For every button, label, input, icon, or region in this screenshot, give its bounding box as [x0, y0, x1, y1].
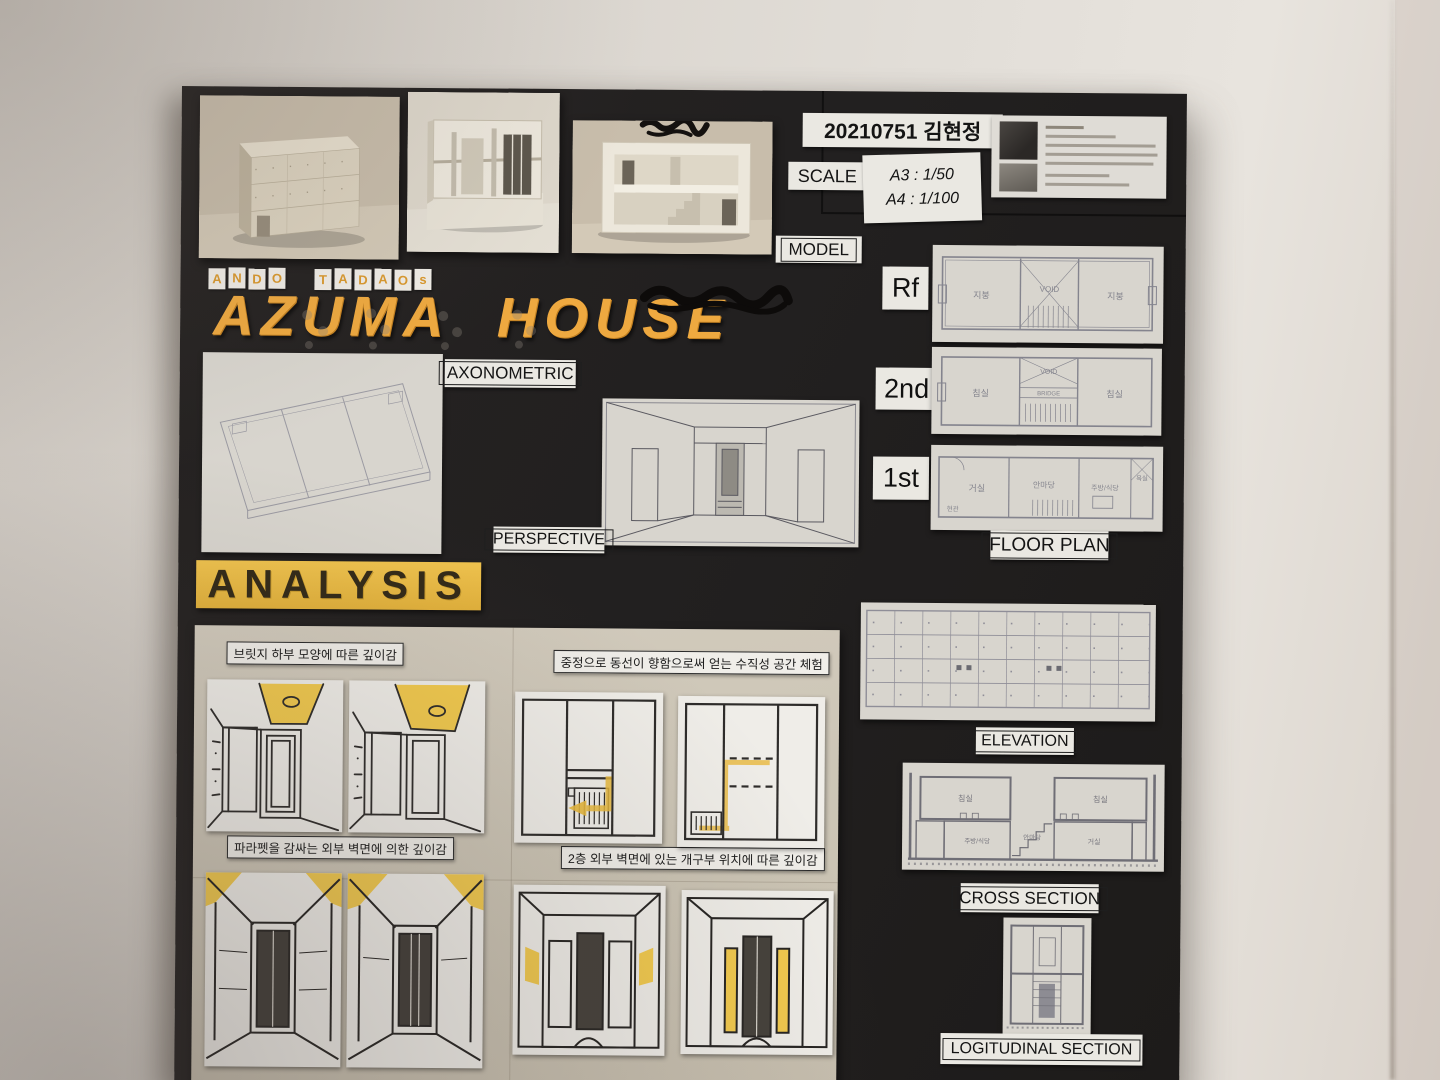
board-seam-vertical	[821, 91, 824, 212]
first-living-label: 거실	[969, 483, 986, 493]
rf-room-right-label: 지붕	[1107, 291, 1124, 301]
elevation-label: ELEVATION	[976, 727, 1074, 755]
model-label: MODEL	[776, 236, 862, 264]
cs-top-right-label: 침실	[1093, 794, 1108, 804]
floor-plan-label: FLOOR PLAN	[990, 530, 1108, 560]
first-plan-paper: 현관 거실 안마당 주방/식당 욕실	[931, 445, 1164, 532]
analysis-sketch-openings-1	[512, 885, 665, 1056]
second-room-right-label: 침실	[1106, 389, 1123, 399]
analysis-sketch-stair-arrow	[514, 692, 663, 844]
rf-room-left-label: 지붕	[973, 290, 990, 300]
cs-bottom-center-label: 안마당	[1023, 833, 1041, 842]
analysis-caption-2: 중정으로 동선이 향함으로써 얻는 수직성 공간 체험	[553, 650, 830, 675]
bio-text-line	[1046, 135, 1116, 138]
perspective-label: PERSPECTIVE	[493, 526, 604, 553]
first-kitchen-label: 주방/식당	[1091, 483, 1119, 492]
cs-top-left-label: 침실	[958, 793, 973, 803]
model-photo-exterior	[199, 95, 400, 260]
axonometric-label: AXONOMETRIC	[445, 359, 576, 388]
architect-bio-card	[991, 115, 1167, 198]
cross-section-drawing: 침실 침실 주방/식당 안마당 거실	[902, 763, 1165, 872]
model-exterior-drawing	[199, 95, 400, 260]
first-floor-plan-drawing: 현관 거실 안마당 주방/식당 욕실	[931, 445, 1164, 532]
bio-text-line	[1045, 153, 1157, 156]
bio-text-line	[1046, 144, 1156, 147]
cs-bottom-right-label: 거실	[1088, 837, 1101, 846]
bio-text-line	[1045, 174, 1109, 177]
floor-tag-2nd: 2nd	[875, 367, 937, 409]
longitudinal-section-label: LOGITUDINAL SECTION	[940, 1033, 1142, 1066]
elevation-paper	[860, 602, 1156, 721]
bio-text-line	[1046, 126, 1084, 129]
analysis-caption-3: 파라펫을 감싸는 외부 벽면에 의한 깊이감	[227, 835, 454, 860]
scale-a4: A4 : 1/100	[886, 190, 959, 210]
scale-card: A3 : 1/50 A4 : 1/100	[862, 152, 982, 223]
second-room-left-label: 침실	[972, 388, 989, 398]
architect-portrait-photo	[999, 121, 1037, 159]
analysis-caption-4: 2층 외부 벽면에 있는 개구부 위치에 따른 깊이감	[561, 846, 825, 871]
axonometric-drawing-paper	[201, 352, 443, 554]
cs-bottom-left-label: 주방/식당	[964, 836, 990, 845]
axonometric-drawing	[201, 352, 443, 554]
elevation-drawing	[860, 602, 1156, 721]
rf-plan-paper: 지붕 VOID 지붕	[932, 245, 1164, 344]
architect-building-photo	[999, 163, 1037, 191]
analysis-caption-1: 브릿지 하부 모양에 따른 깊이감	[226, 641, 404, 665]
analysis-sketch-corridor-2	[346, 873, 484, 1068]
rf-floor-plan-drawing: 지붕 VOID 지붕	[932, 245, 1164, 344]
student-id-label: 20210751 김현정	[803, 113, 1003, 149]
photo-scene: MODEL 20210751 김현정 SCALE A3 : 1/50 A4 : …	[0, 0, 1440, 1080]
wall-right-panel	[1395, 0, 1440, 1080]
scale-label: SCALE	[788, 162, 866, 191]
presentation-board: MODEL 20210751 김현정 SCALE A3 : 1/50 A4 : …	[174, 86, 1187, 1080]
perspective-drawing-paper	[601, 398, 859, 547]
longitudinal-section-drawing	[1003, 917, 1092, 1036]
bio-text-line	[1045, 162, 1153, 165]
scale-a3: A3 : 1/50	[890, 166, 955, 186]
cross-section-paper: 침실 침실 주방/식당 안마당 거실	[902, 763, 1165, 872]
analysis-sketch-bridge-2	[348, 680, 485, 833]
model-section-drawing	[572, 120, 773, 255]
second-bridge-label: BRIDGE	[1037, 391, 1060, 397]
analysis-sketch-bridge-1	[206, 679, 343, 832]
first-bath-label: 욕실	[1136, 474, 1148, 483]
model-photo-interior	[407, 92, 560, 253]
model-interior-drawing	[407, 92, 560, 253]
longitudinal-section-paper	[1003, 917, 1092, 1036]
first-courtyard-label: 안마당	[1033, 480, 1056, 490]
second-floor-plan-drawing: 침실 VOID BRIDGE 침실	[931, 347, 1162, 436]
blacked-out-scribble-icon	[638, 282, 793, 315]
analysis-sketch-stair-path	[677, 696, 825, 848]
model-photo-section	[572, 120, 773, 255]
perspective-drawing	[601, 398, 859, 547]
floor-tag-rf: Rf	[882, 267, 928, 310]
second-plan-paper: 침실 VOID BRIDGE 침실	[931, 347, 1162, 436]
floor-tag-1st: 1st	[873, 456, 929, 499]
analysis-banner: ANALYSIS	[196, 560, 481, 610]
first-entrance-label: 현관	[947, 504, 959, 513]
cross-section-label: CROSS SECTION	[961, 883, 1099, 913]
analysis-sketch-openings-2	[680, 890, 833, 1055]
rf-void-label: VOID	[1040, 285, 1060, 294]
bio-text-line	[1045, 183, 1129, 186]
analysis-sketch-corridor-1	[204, 872, 342, 1067]
second-void-label: VOID	[1040, 369, 1057, 376]
eraser-smudge-marks	[293, 301, 573, 358]
